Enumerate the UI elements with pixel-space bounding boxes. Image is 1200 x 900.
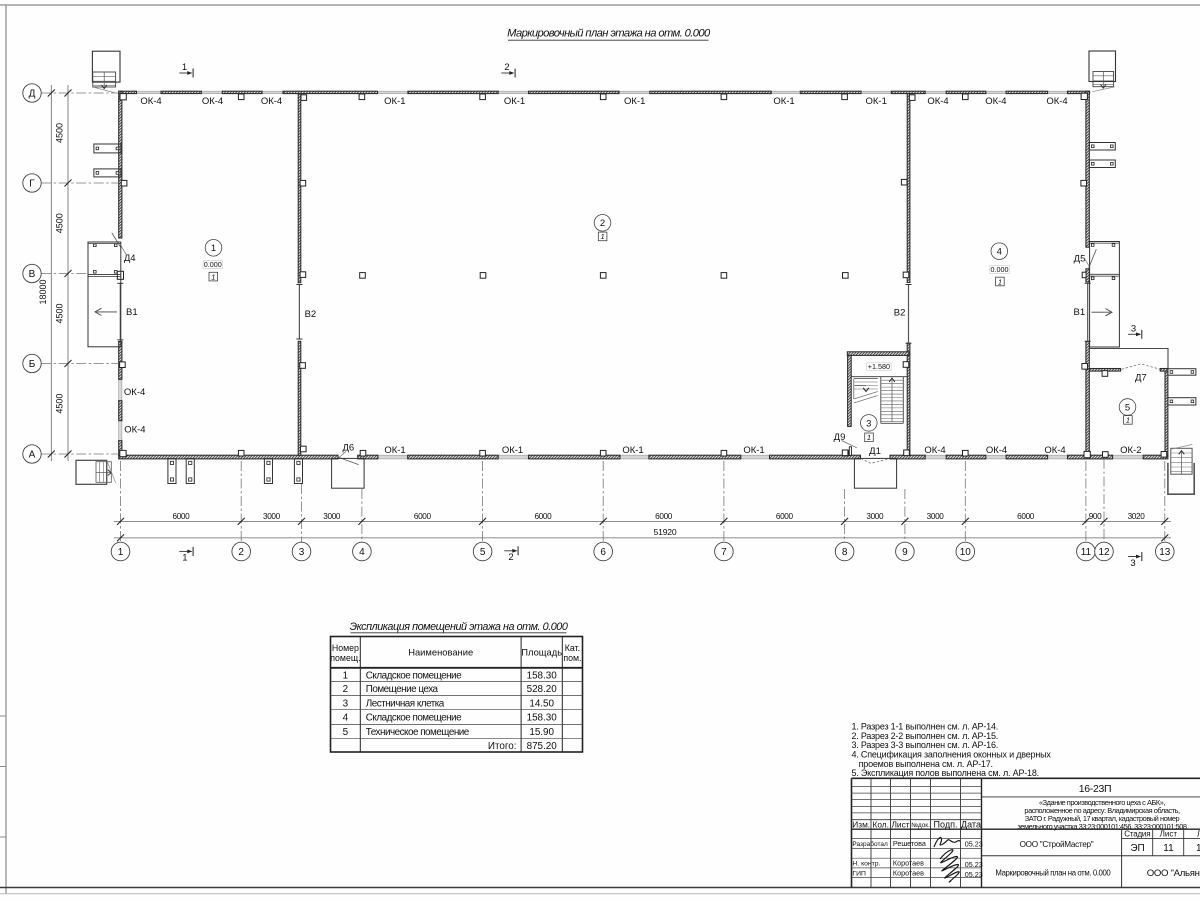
svg-text:3: 3 [1130, 558, 1135, 569]
svg-text:1: 1 [118, 547, 124, 558]
svg-text:ОК-1: ОК-1 [773, 96, 794, 107]
svg-text:05.23: 05.23 [965, 840, 983, 849]
svg-text:ОК-4: ОК-4 [140, 96, 161, 107]
svg-text:13: 13 [1159, 547, 1171, 558]
svg-text:875.20: 875.20 [527, 741, 558, 752]
svg-text:158.30: 158.30 [527, 713, 558, 724]
svg-text:1: 1 [211, 272, 215, 281]
svg-text:пом.: пом. [563, 653, 581, 663]
svg-text:В2: В2 [894, 307, 906, 318]
svg-text:ОК-1: ОК-1 [622, 445, 643, 456]
svg-text:ОК-4: ОК-4 [1046, 96, 1067, 107]
svg-text:ОК-1: ОК-1 [624, 96, 645, 107]
svg-text:2: 2 [600, 218, 605, 229]
svg-text:Коротаев: Коротаев [893, 859, 924, 868]
svg-text:Складское помещение: Складское помещение [366, 670, 462, 681]
svg-text:Техническое помещение: Техническое помещение [366, 727, 470, 738]
svg-text:Разработал: Разработал [852, 840, 888, 848]
svg-text:6000: 6000 [414, 512, 432, 521]
svg-text:51920: 51920 [654, 527, 677, 537]
svg-text:6000: 6000 [172, 512, 190, 521]
svg-text:ОК-1: ОК-1 [502, 445, 523, 456]
svg-text:ОК-4: ОК-4 [1044, 445, 1065, 456]
svg-text:1: 1 [182, 553, 187, 564]
svg-text:Номер: Номер [332, 643, 359, 653]
svg-text:Экспликация помещений этажа на: Экспликация помещений этажа на отм. 0.00… [350, 621, 568, 633]
svg-text:6000: 6000 [655, 512, 673, 521]
svg-text:1: 1 [867, 433, 871, 442]
svg-text:Кол.: Кол. [872, 819, 888, 829]
svg-text:ОК-1: ОК-1 [384, 445, 405, 456]
svg-text:6000: 6000 [776, 512, 794, 521]
svg-text:Кат.: Кат. [565, 643, 580, 653]
svg-text:3000: 3000 [927, 512, 945, 521]
svg-text:помещ.: помещ. [330, 653, 360, 663]
svg-text:1: 1 [601, 232, 605, 241]
svg-text:ОК-4: ОК-4 [927, 96, 948, 107]
svg-text:Дата: Дата [961, 820, 981, 830]
svg-text:1: 1 [1196, 843, 1200, 854]
svg-text:4500: 4500 [55, 123, 65, 143]
svg-text:Решетова: Решетова [893, 839, 926, 848]
svg-text:Маркировочный план этажа на от: Маркировочный план этажа на отм. 0.000 [507, 28, 711, 40]
svg-text:ОК-4: ОК-4 [124, 425, 145, 436]
svg-text:Д: Д [29, 89, 36, 100]
svg-text:ООО "СтройМастер": ООО "СтройМастер" [1020, 840, 1094, 849]
svg-text:Д7: Д7 [1135, 373, 1147, 384]
svg-text:3000: 3000 [323, 512, 341, 521]
svg-text:14.50: 14.50 [529, 698, 554, 709]
svg-text:А: А [29, 450, 36, 461]
svg-text:3020: 3020 [1128, 512, 1146, 521]
svg-text:Помещение цеха: Помещение цеха [366, 684, 439, 695]
svg-text:Б: Б [29, 359, 36, 370]
svg-text:Складское помещение: Складское помещение [366, 713, 462, 724]
svg-text:В1: В1 [1073, 307, 1085, 318]
svg-text:4: 4 [997, 247, 1002, 258]
svg-text:15.90: 15.90 [529, 727, 554, 738]
svg-text:Лестничная клетка: Лестничная клетка [366, 698, 445, 709]
svg-text:Д4: Д4 [124, 253, 136, 264]
svg-text:900: 900 [1089, 512, 1102, 521]
svg-text:Подп.: Подп. [934, 820, 958, 830]
svg-text:В: В [29, 269, 36, 280]
svg-text:Д6: Д6 [342, 443, 354, 454]
svg-text:2: 2 [504, 62, 509, 73]
svg-text:Лист: Лист [891, 819, 909, 829]
svg-text:ОК-2: ОК-2 [1120, 445, 1141, 456]
svg-text:5: 5 [343, 727, 349, 738]
svg-text:Д5: Д5 [1074, 254, 1086, 265]
svg-text:ГИП: ГИП [852, 871, 866, 878]
svg-text:5: 5 [480, 547, 486, 558]
svg-text:1: 1 [211, 243, 216, 254]
svg-text:В1: В1 [126, 307, 138, 318]
svg-text:3: 3 [1131, 324, 1136, 335]
svg-text:4: 4 [359, 547, 365, 558]
svg-text:18000: 18000 [38, 279, 48, 304]
svg-text:2: 2 [343, 684, 349, 695]
svg-text:3: 3 [866, 418, 871, 429]
svg-text:1: 1 [182, 62, 187, 73]
svg-text:ОК-1: ОК-1 [743, 445, 764, 456]
svg-text:05.23: 05.23 [965, 860, 983, 869]
svg-text:8: 8 [842, 547, 848, 558]
svg-text:4500: 4500 [55, 394, 65, 414]
svg-text:ООО "АльянсПроект": ООО "АльянсПроект" [1147, 868, 1200, 879]
svg-text:3000: 3000 [866, 512, 884, 521]
svg-text:ОК-4: ОК-4 [985, 96, 1006, 107]
svg-text:Маркировочный план на отм. 0.0: Маркировочный план на отм. 0.000 [995, 868, 1111, 877]
svg-text:ОК-4: ОК-4 [261, 96, 282, 107]
svg-text:ОК-4: ОК-4 [202, 96, 223, 107]
svg-text:5: 5 [1125, 402, 1130, 413]
svg-text:ОК-4: ОК-4 [924, 445, 945, 456]
svg-text:7: 7 [721, 547, 727, 558]
svg-text:Н. контр.: Н. контр. [852, 860, 880, 867]
svg-text:Коротаев: Коротаев [893, 869, 924, 878]
svg-text:ЭП: ЭП [1130, 843, 1144, 854]
svg-text:1: 1 [343, 670, 349, 681]
svg-text:ОК-4: ОК-4 [986, 445, 1007, 456]
svg-text:Г: Г [29, 179, 35, 190]
svg-text:№док.: №док. [911, 822, 930, 829]
svg-text:Итого:: Итого: [488, 741, 517, 752]
svg-text:6: 6 [600, 547, 606, 558]
svg-text:0.000: 0.000 [204, 260, 222, 269]
svg-text:+1.580: +1.580 [868, 362, 890, 371]
svg-text:Д1: Д1 [869, 446, 881, 457]
svg-text:1: 1 [998, 277, 1002, 286]
svg-text:3000: 3000 [263, 512, 281, 521]
svg-text:3: 3 [343, 698, 349, 709]
svg-text:0.000: 0.000 [991, 265, 1009, 274]
svg-text:ОК-1: ОК-1 [384, 96, 405, 107]
svg-text:12: 12 [1098, 547, 1110, 558]
svg-text:2: 2 [508, 552, 513, 563]
svg-text:5. Экспликация полов выполнена: 5. Экспликация полов выполнена см. л. АР… [852, 768, 1039, 778]
svg-text:05.23: 05.23 [965, 870, 983, 879]
svg-text:Лист: Лист [1160, 829, 1178, 838]
svg-text:10: 10 [960, 547, 972, 558]
svg-text:ОК-1: ОК-1 [866, 96, 887, 107]
svg-text:В2: В2 [305, 309, 317, 320]
svg-text:6000: 6000 [534, 512, 552, 521]
svg-text:Изм.: Изм. [852, 819, 870, 829]
svg-text:Площадь: Площадь [521, 647, 562, 658]
svg-text:11: 11 [1163, 843, 1174, 854]
svg-text:6000: 6000 [1017, 512, 1035, 521]
svg-text:158.30: 158.30 [527, 670, 558, 681]
svg-text:16-23П: 16-23П [1079, 783, 1112, 795]
svg-text:4500: 4500 [55, 213, 65, 233]
svg-text:Стадия: Стадия [1124, 829, 1150, 838]
svg-text:2: 2 [238, 547, 244, 558]
svg-text:4500: 4500 [55, 303, 65, 323]
svg-text:1: 1 [1126, 416, 1130, 425]
svg-text:4: 4 [343, 713, 349, 724]
svg-text:ОК-1: ОК-1 [504, 96, 525, 107]
svg-text:Наименование: Наименование [408, 647, 473, 658]
svg-text:528.20: 528.20 [527, 684, 558, 695]
svg-text:9: 9 [902, 547, 908, 558]
svg-text:3: 3 [299, 547, 305, 558]
svg-text:11: 11 [1081, 547, 1092, 558]
svg-text:ОК-4: ОК-4 [124, 387, 145, 398]
